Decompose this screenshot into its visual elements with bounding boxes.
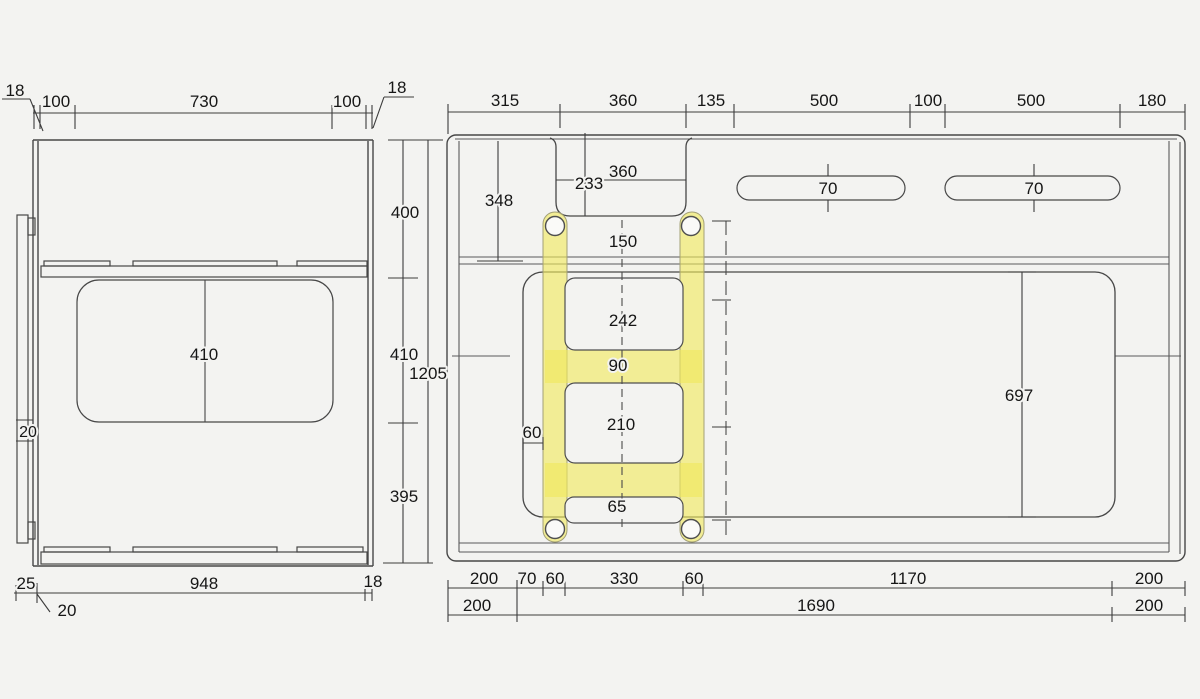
dim-bracket-150: 150	[609, 232, 637, 251]
bolt-hole	[546, 520, 565, 539]
dim-rb1-1170: 1170	[890, 569, 927, 588]
dim-right-top-360: 360	[609, 91, 637, 110]
right-view	[447, 104, 1185, 622]
dim-rb2-200-b: 200	[1135, 596, 1163, 615]
dim-notch-233: 233	[575, 174, 603, 193]
dim-bracket-242: 242	[609, 311, 637, 330]
dim-right-top-315: 315	[491, 91, 519, 110]
middle-rail	[41, 261, 367, 277]
dim-left-strip-20: 20	[19, 424, 37, 441]
drawing-sheet: 18 100 730 100 18 410 20 400 410 1205 39…	[0, 0, 1200, 699]
dim-left-395: 395	[390, 487, 418, 506]
dim-rb1-60-a: 60	[546, 569, 565, 588]
dim-left-top-100-right: 100	[333, 92, 361, 111]
dim-bracket-60: 60	[523, 423, 542, 442]
dim-left-panel-410: 410	[190, 345, 218, 364]
dim-left-1205: 1205	[409, 364, 447, 383]
dim-left-top-730: 730	[190, 92, 218, 111]
dim-left-bottom-948: 948	[190, 574, 218, 593]
dim-right-top-180: 180	[1138, 91, 1166, 110]
dim-slot-70-left: 70	[819, 179, 838, 198]
dim-cutout-697: 697	[1005, 386, 1033, 405]
bolt-hole	[682, 520, 701, 539]
bolt-hole	[546, 217, 565, 236]
dim-bracket-65: 65	[608, 497, 627, 516]
technical-drawing-canvas: 18 100 730 100 18 410 20 400 410 1205 39…	[0, 0, 1200, 699]
bracket-crossbar-lower	[545, 463, 702, 497]
dim-left-bottom-25: 25	[17, 574, 36, 593]
dim-right-top-500-b: 500	[1017, 91, 1045, 110]
dim-slot-70-right: 70	[1025, 179, 1044, 198]
dim-rb1-60-b: 60	[685, 569, 704, 588]
dim-left-400: 400	[391, 203, 419, 222]
h-bracket-highlight	[543, 212, 704, 542]
dim-rb1-330: 330	[610, 569, 638, 588]
dim-right-top-100: 100	[914, 91, 942, 110]
dim-right-348: 348	[485, 191, 513, 210]
dim-bracket-210: 210	[607, 415, 635, 434]
dim-bracket-90: 90	[609, 356, 628, 375]
bolt-hole	[682, 217, 701, 236]
dim-left-410-chain: 410	[390, 345, 418, 364]
left-view-dim-lines	[2, 97, 443, 612]
dim-rb1-70: 70	[518, 569, 537, 588]
dim-rb2-1690: 1690	[797, 596, 835, 615]
dim-rb2-200-a: 200	[463, 596, 491, 615]
dim-right-top-500-a: 500	[810, 91, 838, 110]
dim-rb1-200-b: 200	[1135, 569, 1163, 588]
reference-ticks	[712, 221, 731, 520]
dim-rb1-200-a: 200	[470, 569, 498, 588]
dim-right-top-135: 135	[697, 91, 725, 110]
dim-left-bottom-18: 18	[364, 572, 383, 591]
dim-left-top-18-right: 18	[388, 78, 407, 97]
dim-left-top-100-left: 100	[42, 92, 70, 111]
dim-left-bottom-20: 20	[58, 601, 77, 620]
dim-left-top-18-left: 18	[6, 81, 25, 100]
bottom-rail	[41, 547, 367, 564]
left-view	[2, 97, 443, 612]
dim-notch-360: 360	[609, 162, 637, 181]
